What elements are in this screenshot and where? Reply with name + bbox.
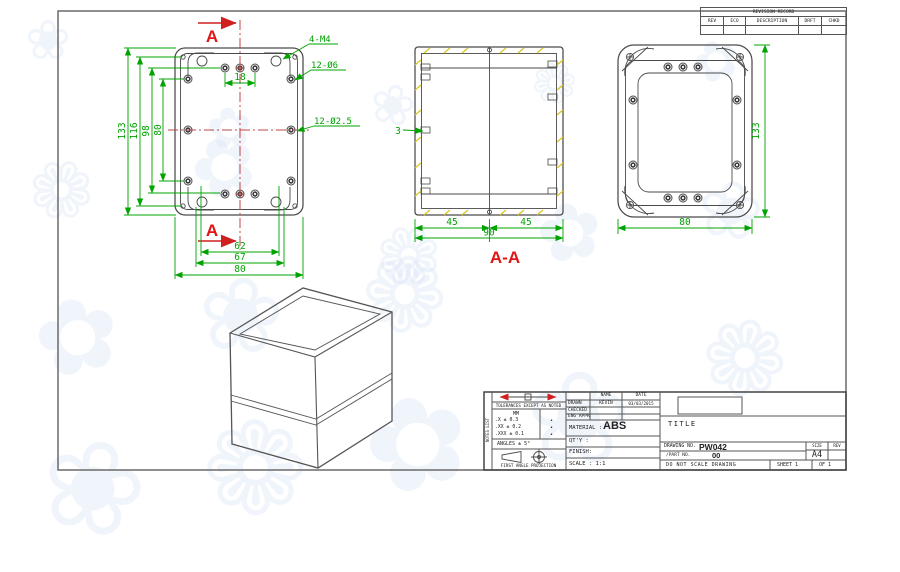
isometric-view [230,288,392,468]
cad-drawing-canvas: A A 133 116 98 80 18 62 6 [0,0,900,500]
back-view: 133 80 [618,45,770,234]
back-holes [629,63,741,202]
dim-front-98: 98 [141,125,152,137]
drawn-date: 03/03/2015 [622,402,660,406]
unit-label: MM [492,412,540,417]
dim-section-90: 90 [483,228,495,239]
material-label: MATERIAL : [569,426,602,432]
section-label-a-bottom: A [206,221,218,240]
section-hatching [415,48,563,215]
drawing-sheet: { "revision_table": { "title": "REVISION… [0,0,900,500]
dim-back-80: 80 [679,217,691,228]
section-label-a-top: A [206,27,218,46]
drawn-label: DRAWN [568,402,582,407]
dim-front-62: 62 [234,241,245,252]
tolerance-mark-2: • [550,426,553,431]
datum-arrows-symbol [500,394,556,400]
dim-front-133: 133 [117,122,128,139]
sheet-label: SHEET 1 [777,463,798,468]
drawing-no-value: PW042 [699,443,727,452]
date-header: DATE [623,394,659,399]
revision-table-title: REVISION RECORD [701,8,847,17]
title-label: TITLE [668,421,697,428]
description-col-header: DESCRIPTION [746,17,799,26]
do-not-scale-note: DO NOT SCALE DRAWING [666,463,736,468]
callout-4-m4: 4-M4 [309,35,331,45]
dim-front-80h: 80 [234,264,246,275]
tolerance-xxx: .XXX ± 0.1 [495,433,524,438]
dim-back-133: 133 [751,122,762,139]
eco-col-header: ECO [724,17,746,26]
chkd-col-header: CHKD [822,17,847,26]
dim-front-67: 67 [234,252,245,263]
tolerance-mark-1: • [550,419,553,424]
dim-section-3: 3 [395,126,401,137]
section-view: 3 45 45 90 A-A [395,47,563,267]
checked-label: CHECKED [568,409,587,414]
dim-wall-leader [403,130,423,131]
scale-label: SCALE : 1:1 [569,462,605,468]
angles-tolerance: ANGLES ± 5° [497,442,530,447]
tolerance-header: TOLERANCES EXCEPT AS NOTED [493,404,564,408]
tolerance-mark-3: • [550,433,553,438]
tolerance-x: .X ± 0.3 [495,419,518,424]
front-view: A A 133 116 98 80 18 62 6 [117,20,360,279]
finish-label: FINISH: [569,450,592,456]
dim-section-45-right: 45 [520,217,531,228]
titleblock-side-label: NOTES LIST [486,404,490,456]
material-value: ABS [603,421,626,432]
part-no-value: 00 [712,452,720,460]
of-label: OF 1 [819,463,831,468]
rev-label: REV [828,444,846,448]
callout-12-d6: 12-Ø6 [311,60,338,71]
revision-empty-row [701,26,847,35]
dim-section-45-left: 45 [446,217,457,228]
drft-col-header: DRFT [799,17,822,26]
rev-col-header: REV [701,17,724,26]
eng-appr-label: ENG APPR [568,415,590,420]
drawn-name: KEVIN [591,402,621,407]
qty-label: QT'Y : [569,439,589,445]
callout-12-d2-5: 12-Ø2.5 [314,116,352,127]
name-header: NAME [591,394,621,399]
section-tabs [421,61,557,194]
revision-table: REVISION RECORD REV ECO DESCRIPTION DRFT… [700,7,846,35]
dim-front-80v: 80 [153,124,164,136]
tolerance-xx: .XX ± 0.2 [495,426,521,431]
size-label: SIZE [806,444,828,448]
dim-front-18: 18 [234,72,246,83]
size-value: A4 [806,451,828,460]
section-title-a-a: A-A [490,248,520,267]
back-corner-screws [626,53,743,208]
projection-label: FIRST ANGLE PROJECTION [492,464,565,468]
part-no-label: /PART NO. [666,454,690,459]
logo-box [678,397,742,414]
dim-front-116: 116 [129,122,140,139]
drawing-no-label: DRAWING NO. [664,445,696,450]
sheet-frame [58,11,846,470]
